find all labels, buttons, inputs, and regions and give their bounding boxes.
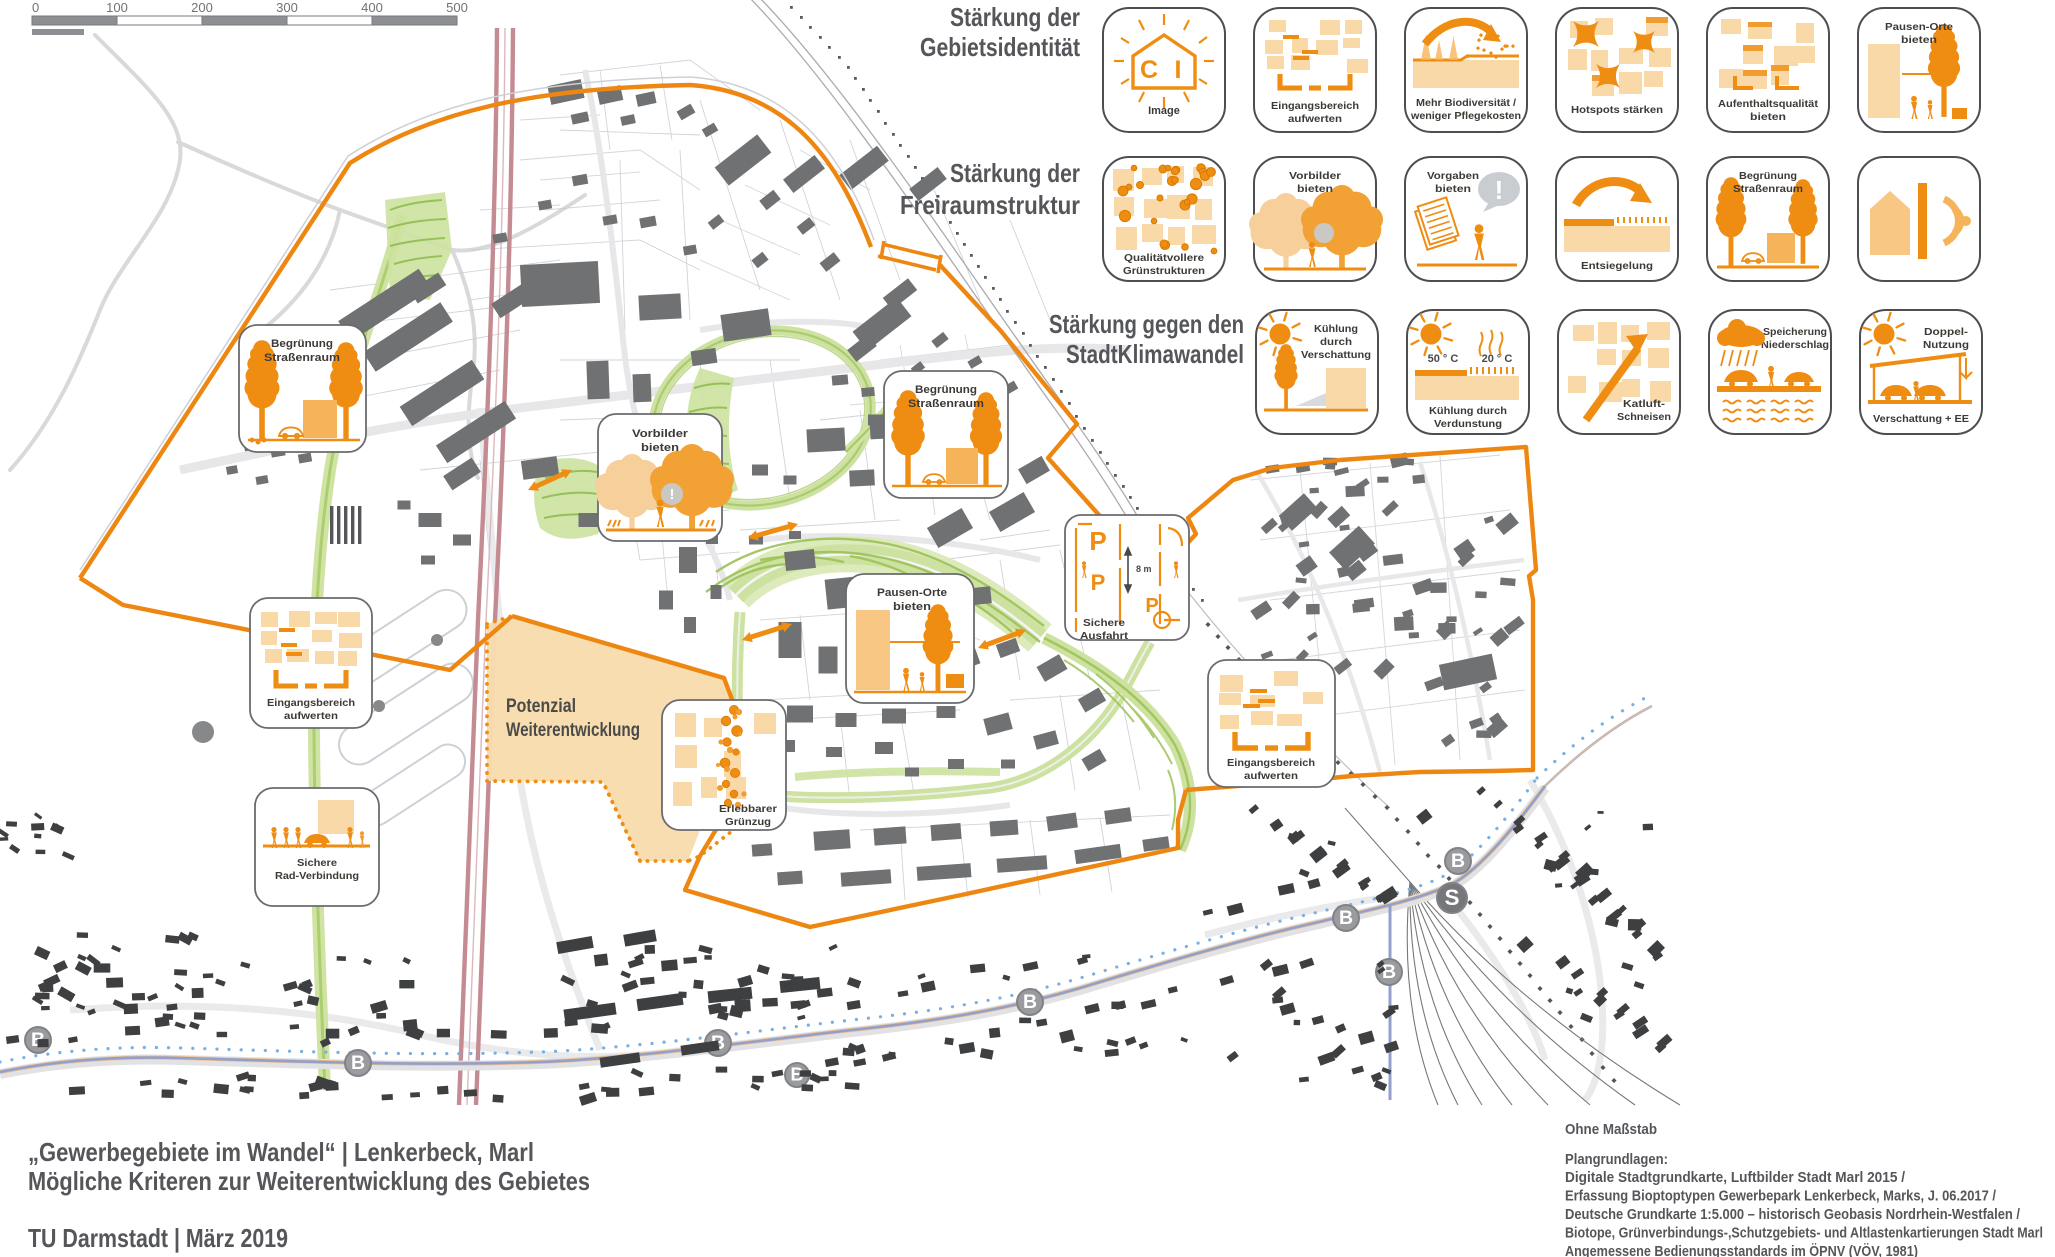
svg-text:Stärkung der: Stärkung der <box>950 2 1080 32</box>
svg-text:bieten: bieten <box>1297 183 1333 195</box>
svg-text:8 m: 8 m <box>1136 564 1152 574</box>
svg-text:Erlebbarer: Erlebbarer <box>719 803 777 815</box>
svg-text:Angemessene Bedienungsstandard: Angemessene Bedienungsstandards im ÖPNV … <box>1565 1243 1918 1257</box>
svg-text:Image: Image <box>1148 105 1180 117</box>
svg-text:Ausfahrt: Ausfahrt <box>1080 630 1129 642</box>
svg-text:Vorgaben: Vorgaben <box>1427 170 1479 182</box>
svg-text:400: 400 <box>361 0 383 15</box>
svg-text:Grünzug: Grünzug <box>725 816 771 828</box>
svg-text:I: I <box>1175 56 1182 84</box>
svg-text:bieten: bieten <box>1901 34 1937 46</box>
svg-text:Biotope, Grünverbindungs-,Schu: Biotope, Grünverbindungs-,Schutzgebiets-… <box>1565 1226 2043 1242</box>
svg-text:StadtKlimawandel: StadtKlimawandel <box>1066 339 1244 369</box>
svg-text:durch: durch <box>1320 336 1352 348</box>
svg-text:B: B <box>1023 991 1037 1013</box>
svg-text:B: B <box>1339 907 1353 929</box>
svg-text:TU Darmstadt | März 2019: TU Darmstadt | März 2019 <box>28 1223 288 1253</box>
svg-text:Mögliche Kriteren zur Weiteren: Mögliche Kriteren zur Weiterentwicklung … <box>28 1166 590 1196</box>
svg-text:bieten: bieten <box>1435 183 1471 195</box>
svg-text:100: 100 <box>106 0 128 15</box>
svg-text:Kühlung: Kühlung <box>1314 323 1358 335</box>
svg-text:Deutsche Grundkarte 1:5.000 –: Deutsche Grundkarte 1:5.000 – historisch… <box>1565 1207 2020 1223</box>
svg-text:200: 200 <box>191 0 213 15</box>
svg-text:Freiraumstruktur: Freiraumstruktur <box>900 190 1080 220</box>
svg-text:Begrünung: Begrünung <box>271 338 333 350</box>
svg-text:Straßenraum: Straßenraum <box>264 352 340 364</box>
svg-text:Verschattung: Verschattung <box>1301 349 1371 361</box>
svg-text:Nutzung: Nutzung <box>1923 339 1969 351</box>
svg-text:Hotspots stärken: Hotspots stärken <box>1571 104 1663 116</box>
svg-text:Verschattung + EE: Verschattung + EE <box>1873 413 1969 425</box>
svg-text:Erfassung Bioptoptypen Gewerbe: Erfassung Bioptoptypen Gewerbepark Lenke… <box>1565 1189 1996 1205</box>
svg-text:C: C <box>1140 56 1158 84</box>
svg-text:Aufenthaltsqualität: Aufenthaltsqualität <box>1718 98 1819 110</box>
svg-text:Begrünung: Begrünung <box>1739 170 1797 182</box>
svg-text:Entsiegelung: Entsiegelung <box>1581 260 1653 272</box>
svg-text:Grünstrukturen: Grünstrukturen <box>1123 265 1205 277</box>
svg-text:S: S <box>1444 885 1459 910</box>
svg-text:50 ° C: 50 ° C <box>1428 353 1459 365</box>
svg-text:Eingangsbereich: Eingangsbereich <box>1271 100 1359 112</box>
svg-text:!: ! <box>670 486 675 503</box>
svg-text:0: 0 <box>32 0 39 15</box>
svg-text:Pausen-Orte: Pausen-Orte <box>1885 21 1953 33</box>
svg-text:Pausen-Orte: Pausen-Orte <box>877 587 947 599</box>
svg-text:Vorbilder: Vorbilder <box>632 428 689 440</box>
svg-text:Doppel-: Doppel- <box>1924 326 1969 338</box>
svg-text:Eingangsbereich: Eingangsbereich <box>267 697 355 709</box>
svg-text:Begrünung: Begrünung <box>915 384 977 396</box>
svg-text:bieten: bieten <box>641 442 679 454</box>
svg-text:bieten: bieten <box>893 601 931 613</box>
svg-text:Straßenraum: Straßenraum <box>908 398 984 410</box>
svg-text:Mehr Biodiversität /: Mehr Biodiversität / <box>1416 97 1516 109</box>
svg-text:Stärkung gegen den: Stärkung gegen den <box>1049 309 1244 339</box>
svg-text:Straßenraum: Straßenraum <box>1733 183 1803 195</box>
svg-text:Speicherung: Speicherung <box>1763 326 1827 338</box>
svg-text:P: P <box>1091 570 1106 595</box>
svg-text:Sichere: Sichere <box>297 857 337 869</box>
svg-text:Gebietsidentität: Gebietsidentität <box>920 32 1080 62</box>
svg-text:B: B <box>351 1052 365 1074</box>
svg-text:300: 300 <box>276 0 298 15</box>
svg-text:aufwerten: aufwerten <box>284 710 338 722</box>
svg-text:500: 500 <box>446 0 468 15</box>
svg-text:Qualitätvollere: Qualitätvollere <box>1124 252 1204 264</box>
svg-text:Ohne Maßstab: Ohne Maßstab <box>1565 1122 1657 1138</box>
svg-text:„Gewerbegebiete im Wandel“ |: „Gewerbegebiete im Wandel“ | Lenkerbeck,… <box>28 1137 534 1167</box>
svg-text:Eingangsbereich: Eingangsbereich <box>1227 757 1315 769</box>
svg-text:bieten: bieten <box>1750 111 1786 123</box>
svg-text:!: ! <box>1495 175 1504 205</box>
svg-text:20 ° C: 20 ° C <box>1482 353 1513 365</box>
svg-text:weniger Pflegekosten: weniger Pflegekosten <box>1410 110 1521 122</box>
svg-text:Vorbilder: Vorbilder <box>1289 170 1341 182</box>
svg-text:Weiterentwicklung: Weiterentwicklung <box>506 720 640 741</box>
svg-text:P: P <box>1089 526 1106 556</box>
svg-text:Sichere: Sichere <box>1083 617 1125 629</box>
svg-text:aufwerten: aufwerten <box>1244 770 1298 782</box>
svg-text:Stärkung der: Stärkung der <box>950 158 1080 188</box>
svg-text:Rad-Verbindung: Rad-Verbindung <box>275 870 359 882</box>
svg-text:Niederschlag: Niederschlag <box>1761 339 1829 351</box>
svg-text:aufwerten: aufwerten <box>1288 113 1342 125</box>
svg-text:Digitale Stadtgrundkarte, Luft: Digitale Stadtgrundkarte, Luftbilder Sta… <box>1565 1170 1905 1186</box>
svg-text:Kühlung durch: Kühlung durch <box>1429 405 1507 417</box>
svg-text:Potenzial: Potenzial <box>506 696 576 717</box>
svg-text:Schneisen: Schneisen <box>1617 411 1671 423</box>
svg-text:Katluft-: Katluft- <box>1623 398 1666 410</box>
svg-text:Verdunstung: Verdunstung <box>1434 418 1502 430</box>
svg-text:Plangrundlagen:: Plangrundlagen: <box>1565 1152 1668 1168</box>
svg-text:B: B <box>1451 850 1465 872</box>
